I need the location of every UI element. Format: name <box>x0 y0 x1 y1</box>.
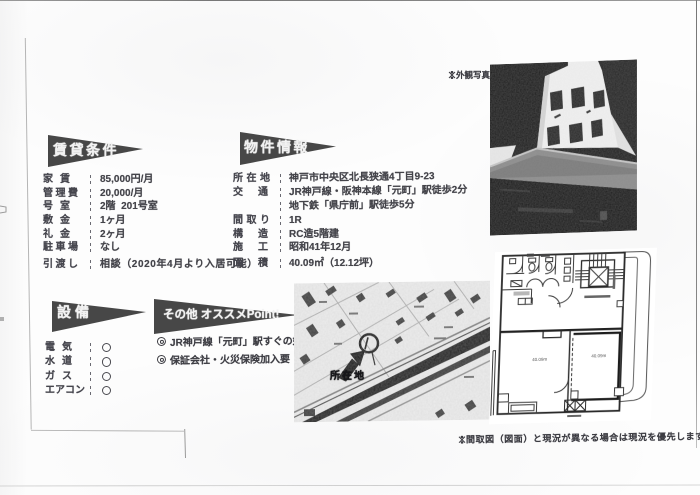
svg-text:40.09m: 40.09m <box>591 353 606 358</box>
svg-text:40.09m: 40.09m <box>532 357 547 362</box>
